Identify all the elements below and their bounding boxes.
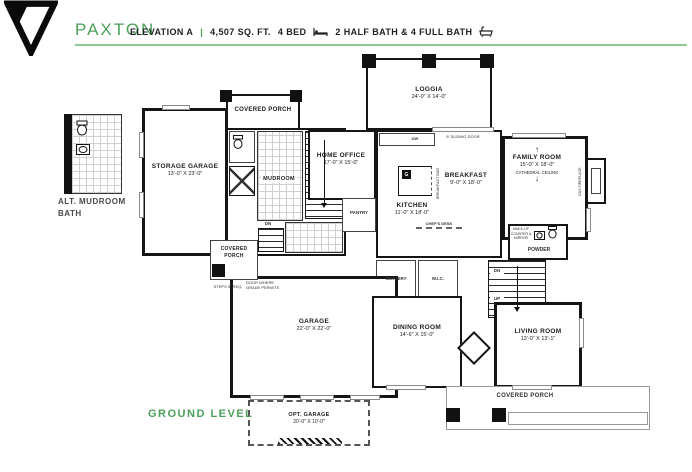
bed-icon [313, 27, 328, 37]
porch-column [212, 264, 225, 277]
loggia-column [422, 54, 436, 68]
room-dims: 13'-0" X 13'-1" [494, 336, 582, 343]
kitchen-island: G [398, 166, 432, 196]
specs-separator: | [200, 27, 203, 37]
room-name: BREAKFAST [434, 172, 498, 180]
fireplace-firebox [591, 168, 601, 194]
living-room [494, 302, 582, 388]
room-dims: 15'-0" X 18'-0" [498, 162, 576, 169]
level-label: GROUND LEVEL [148, 408, 253, 420]
arrow-down-icon: ↓ [498, 175, 576, 183]
gas-fireplace-label: GAS FIREPLACE [578, 162, 583, 202]
door-grade-line2: GRADE PERMITS [246, 285, 300, 290]
family-room-label: ↑ FAMILY ROOM 15'-0" X 18'-0" CATHEDRAL … [498, 146, 576, 183]
window [512, 133, 566, 138]
living-room-label: LIVING ROOM 13'-0" X 13'-1" [494, 328, 582, 344]
room-name: LIVING ROOM [494, 328, 582, 336]
porch-column [492, 408, 506, 422]
room-dims: 9'-0" X 18'-0" [434, 180, 498, 187]
kitchen-label: KITCHEN 11'-0" X 18'-0" [380, 202, 444, 218]
storage-garage-room [142, 108, 228, 256]
alt-plan-label-line2: BATH [58, 208, 126, 220]
stair-direction-arrow [517, 266, 518, 310]
dn-label: DN [260, 221, 276, 227]
room-name: LOGGIA [366, 86, 492, 94]
room-name: COVERED PORCH [470, 393, 580, 401]
wic-label: W.I.C. [418, 276, 458, 282]
breakfast-label: BREAKFAST 9'-0" X 18'-0" [434, 172, 498, 188]
storage-garage-label: STORAGE GARAGE 13'-0" X 23'-0" [142, 163, 228, 179]
window [512, 385, 552, 390]
steps-req-label: STEPS IF REQ. [206, 284, 250, 289]
mudroom-label: MUDROOM [244, 166, 314, 187]
sink-icon [534, 227, 545, 245]
loggia-column [362, 54, 376, 68]
room-dims: 17'-0" X 15'-0" [306, 160, 376, 167]
sliding-door [432, 127, 494, 132]
window [162, 105, 190, 110]
dw-label: DW [408, 136, 422, 141]
logo-triangle-icon [4, 0, 58, 56]
room-dims: 14'-6" X 15'-0" [372, 332, 462, 339]
room-dims: 24'-0" X 14'-0" [366, 94, 492, 101]
room-name: MUDROOM [261, 176, 297, 183]
porch-column [290, 90, 302, 102]
floorplan-page: PAXTON ELEVATION A | 4,507 SQ. FT. 4 BED… [0, 0, 692, 472]
arrow-up-icon: ↑ [498, 146, 576, 154]
loggia-label: LOGGIA 24'-0" X 14'-0" [366, 86, 492, 102]
porch-column [446, 408, 460, 422]
toilet-icon [76, 120, 88, 141]
pantry-label: PANTRY [342, 210, 376, 216]
makeup-counter-label: MAKE-UP COUNTER & MIRROR [510, 227, 532, 241]
room-name: HOME OFFICE [306, 152, 376, 160]
builder-logo [4, 0, 58, 61]
room-name: KITCHEN [380, 202, 444, 210]
toilet-icon [233, 135, 243, 154]
alt-plan-label: ALT. MUDROOM BATH [58, 196, 126, 220]
room-name: COVERED PORCH [226, 107, 300, 115]
bay-window [457, 331, 491, 365]
up-label: UP [490, 296, 504, 302]
porch-step [508, 412, 648, 425]
chefs-desk-label: CHEF'S DESK [416, 221, 462, 229]
room-dims: 11'-0" X 18'-0" [380, 210, 444, 217]
home-office-label: HOME OFFICE 17'-0" X 15'-0" [306, 152, 376, 168]
stair-direction-arrow [324, 140, 325, 206]
window [139, 132, 144, 158]
sink-icon [76, 142, 90, 160]
covered-porch-top-label: COVERED PORCH [226, 107, 300, 115]
opt-garage-label: OPT. GARAGE 20'-0" X 10'-0" [248, 412, 370, 426]
covered-porch-bottom-label: COVERED PORCH [470, 393, 580, 401]
hall-floor [285, 222, 343, 253]
room-name: STORAGE GARAGE [142, 163, 228, 171]
alt-plan-wall [64, 114, 72, 194]
beds-label: 4 BED [278, 27, 307, 37]
room-dims: 20'-0" X 10'-0" [248, 419, 370, 426]
window [350, 395, 380, 400]
window [250, 395, 284, 400]
window [300, 395, 334, 400]
baths-label: 2 HALF BATH & 4 FULL BATH [335, 27, 472, 37]
sliding-door-label: 8' SLIDING DOOR [430, 134, 496, 139]
alt-plan-label-line1: ALT. MUDROOM [58, 196, 126, 208]
room-name: FAMILY ROOM [498, 154, 576, 162]
dining-room-label: DINING ROOM 14'-6" X 15'-0" [372, 324, 462, 340]
dn-label: DN [490, 268, 504, 274]
kitchen-counter [379, 133, 435, 146]
room-name-line2: PORCH [212, 253, 256, 260]
room-name: DINING ROOM [372, 324, 462, 332]
servery-label: SERVERY [376, 276, 416, 282]
powder-label: POWDER [514, 247, 564, 254]
toilet-icon [548, 226, 557, 244]
window [139, 192, 144, 218]
sqft-label: 4,507 SQ. FT. [210, 27, 271, 37]
cooktop-icon: G [402, 170, 411, 179]
covered-porch-left-label: COVERED PORCH [212, 246, 256, 259]
opt-garage-hatch [278, 438, 342, 444]
window [386, 385, 426, 390]
window [586, 208, 591, 232]
plan-specs: ELEVATION A | 4,507 SQ. FT. 4 BED 2 HALF… [130, 26, 493, 37]
porch-column [220, 90, 232, 102]
door-grade-label: DOOR WHERE GRADE PERMITS [246, 280, 300, 290]
elevation-label: ELEVATION A [130, 27, 193, 37]
header-rule [75, 44, 687, 46]
room-name: OPT. GARAGE [248, 412, 370, 419]
dining-room [372, 296, 462, 388]
room-dims: 13'-0" X 23'-0" [142, 171, 228, 178]
mud-steps [258, 228, 284, 252]
alt-mudroom-plan [64, 114, 122, 194]
bath-icon [479, 26, 493, 37]
loggia-column [480, 54, 494, 68]
